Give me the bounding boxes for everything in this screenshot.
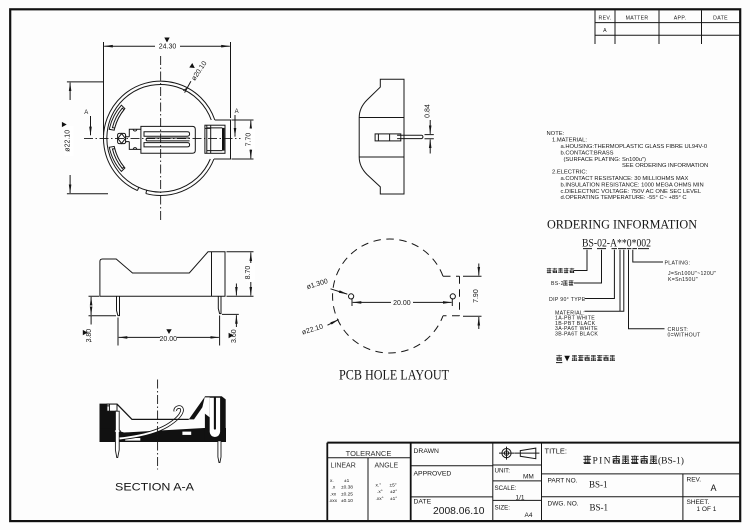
svg-text:7.70: 7.70 <box>245 133 252 147</box>
svg-text:c.DIELECTNIC VOLTAGE: 750V AC: c.DIELECTNIC VOLTAGE: 750V AC ONE SEC LE… <box>561 189 702 195</box>
svg-text:±1°: ±1° <box>390 496 397 502</box>
svg-text:a.CONTACT RESISTANCE: 30 MILLI: a.CONTACT RESISTANCE: 30 MILLIOHMS MAX <box>561 176 689 182</box>
svg-text:24.30: 24.30 <box>159 44 177 51</box>
svg-text:.x: .x <box>332 486 336 491</box>
svg-text:.xx: .xx <box>330 492 337 497</box>
svg-text:MM: MM <box>523 473 534 480</box>
svg-text:A: A <box>235 109 239 115</box>
svg-text:PCB HOLE LAYOUT: PCB HOLE LAYOUT <box>339 368 449 384</box>
svg-text:BS-1: BS-1 <box>590 503 609 513</box>
svg-text:PLATING:: PLATING: <box>665 261 691 267</box>
svg-text:.xxx: .xxx <box>329 499 338 504</box>
svg-text:0=WITHOUT: 0=WITHOUT <box>668 333 702 339</box>
svg-text:A: A <box>84 110 88 116</box>
svg-text:J=Sn100U"~120U": J=Sn100U"~120U" <box>668 271 716 277</box>
svg-text:8.70: 8.70 <box>245 266 252 280</box>
svg-text:MATTER: MATTER <box>626 16 649 22</box>
svg-text:A: A <box>711 483 717 493</box>
svg-text:.xx°: .xx° <box>376 496 384 502</box>
svg-text:BS-02-A**0*002: BS-02-A**0*002 <box>582 238 651 250</box>
svg-text:7.90: 7.90 <box>473 289 480 303</box>
svg-text:REV.: REV. <box>687 477 702 484</box>
svg-text:a.HOUSING:THERMOPLASTIC GLASS: a.HOUSING:THERMOPLASTIC GLASS FIBRE UL94… <box>561 144 708 150</box>
svg-text:SEE ORDERING INFORMATION: SEE ORDERING INFORMATION <box>622 163 708 169</box>
svg-text:PART NO.: PART NO. <box>548 478 578 485</box>
svg-text:BS-2: BS-2 <box>551 281 564 287</box>
svg-text:2.ELECTRIC:: 2.ELECTRIC: <box>552 170 588 176</box>
svg-text:LINEAR: LINEAR <box>331 463 356 470</box>
svg-text:±0.38: ±0.38 <box>341 485 353 491</box>
svg-text:±2°: ±2° <box>390 489 397 495</box>
svg-text:APPROVED: APPROVED <box>414 470 452 477</box>
svg-text:(BS-1): (BS-1) <box>658 455 684 466</box>
svg-text:ø22.10: ø22.10 <box>64 130 71 152</box>
svg-text:TITLE:: TITLE: <box>545 447 568 456</box>
svg-text:±5°: ±5° <box>390 482 397 488</box>
svg-text:3B-PA6T BLACK: 3B-PA6T BLACK <box>555 332 598 338</box>
svg-text:NOTE:: NOTE: <box>547 131 565 137</box>
svg-text:20.00: 20.00 <box>393 300 411 307</box>
svg-text:±0.25: ±0.25 <box>341 491 353 497</box>
svg-text:A: A <box>603 28 607 34</box>
svg-text:d.OPERATING TEMPERATURE: -55°: d.OPERATING TEMPERATURE: -55° C~ +85° C <box>561 195 687 201</box>
svg-text:SCALE:: SCALE: <box>495 485 517 492</box>
svg-text:APP.: APP. <box>674 16 686 22</box>
svg-text:DRAWN: DRAWN <box>414 448 440 455</box>
svg-text:SHEET.: SHEET. <box>687 499 710 506</box>
svg-text:REV.: REV. <box>599 16 612 22</box>
svg-text:SECTION A-A: SECTION A-A <box>115 482 195 494</box>
svg-text:3.80: 3.80 <box>86 329 93 343</box>
svg-text:±1: ±1 <box>344 478 350 484</box>
svg-text:±0.10: ±0.10 <box>341 498 353 504</box>
svg-text:1 OF 1: 1 OF 1 <box>697 506 717 513</box>
svg-text:1.MATERIAL:: 1.MATERIAL: <box>552 138 587 144</box>
svg-text:UNIT:: UNIT: <box>495 468 511 475</box>
svg-text:.x°: .x° <box>377 489 383 495</box>
svg-text:DIP 90° TYPE: DIP 90° TYPE <box>549 297 586 303</box>
svg-text:PIN: PIN <box>593 456 611 466</box>
svg-text:DATE: DATE <box>713 16 728 22</box>
svg-text:ANGLE: ANGLE <box>375 463 399 470</box>
svg-text:SIZE:: SIZE: <box>495 505 511 512</box>
svg-text:x.°: x.° <box>376 482 382 488</box>
svg-text:1/1: 1/1 <box>516 494 525 501</box>
svg-text:(SURFACE PLATING: Sn100u"): (SURFACE PLATING: Sn100u") <box>564 157 647 163</box>
svg-text:DATE: DATE <box>414 499 432 506</box>
svg-text:ORDERING INFORMATION: ORDERING INFORMATION <box>547 218 697 232</box>
svg-text:BS-1: BS-1 <box>589 480 608 490</box>
svg-text:TOLERANCE: TOLERANCE <box>346 449 392 458</box>
svg-text:b.INSULATION RESISTANCE: 1000: b.INSULATION RESISTANCE: 1000 MEGA OHMS … <box>561 182 704 188</box>
svg-text:0.84: 0.84 <box>424 104 431 118</box>
svg-text:K=Sn150U": K=Sn150U" <box>668 277 698 283</box>
svg-text:DWG. NO.: DWG. NO. <box>548 501 579 508</box>
svg-text:x.: x. <box>330 479 334 484</box>
svg-text:b.CONTACT:BRASS: b.CONTACT:BRASS <box>561 150 614 156</box>
svg-text:A4: A4 <box>525 512 533 519</box>
svg-text:20.00: 20.00 <box>160 336 178 343</box>
svg-text:2008.06.10: 2008.06.10 <box>433 505 485 517</box>
